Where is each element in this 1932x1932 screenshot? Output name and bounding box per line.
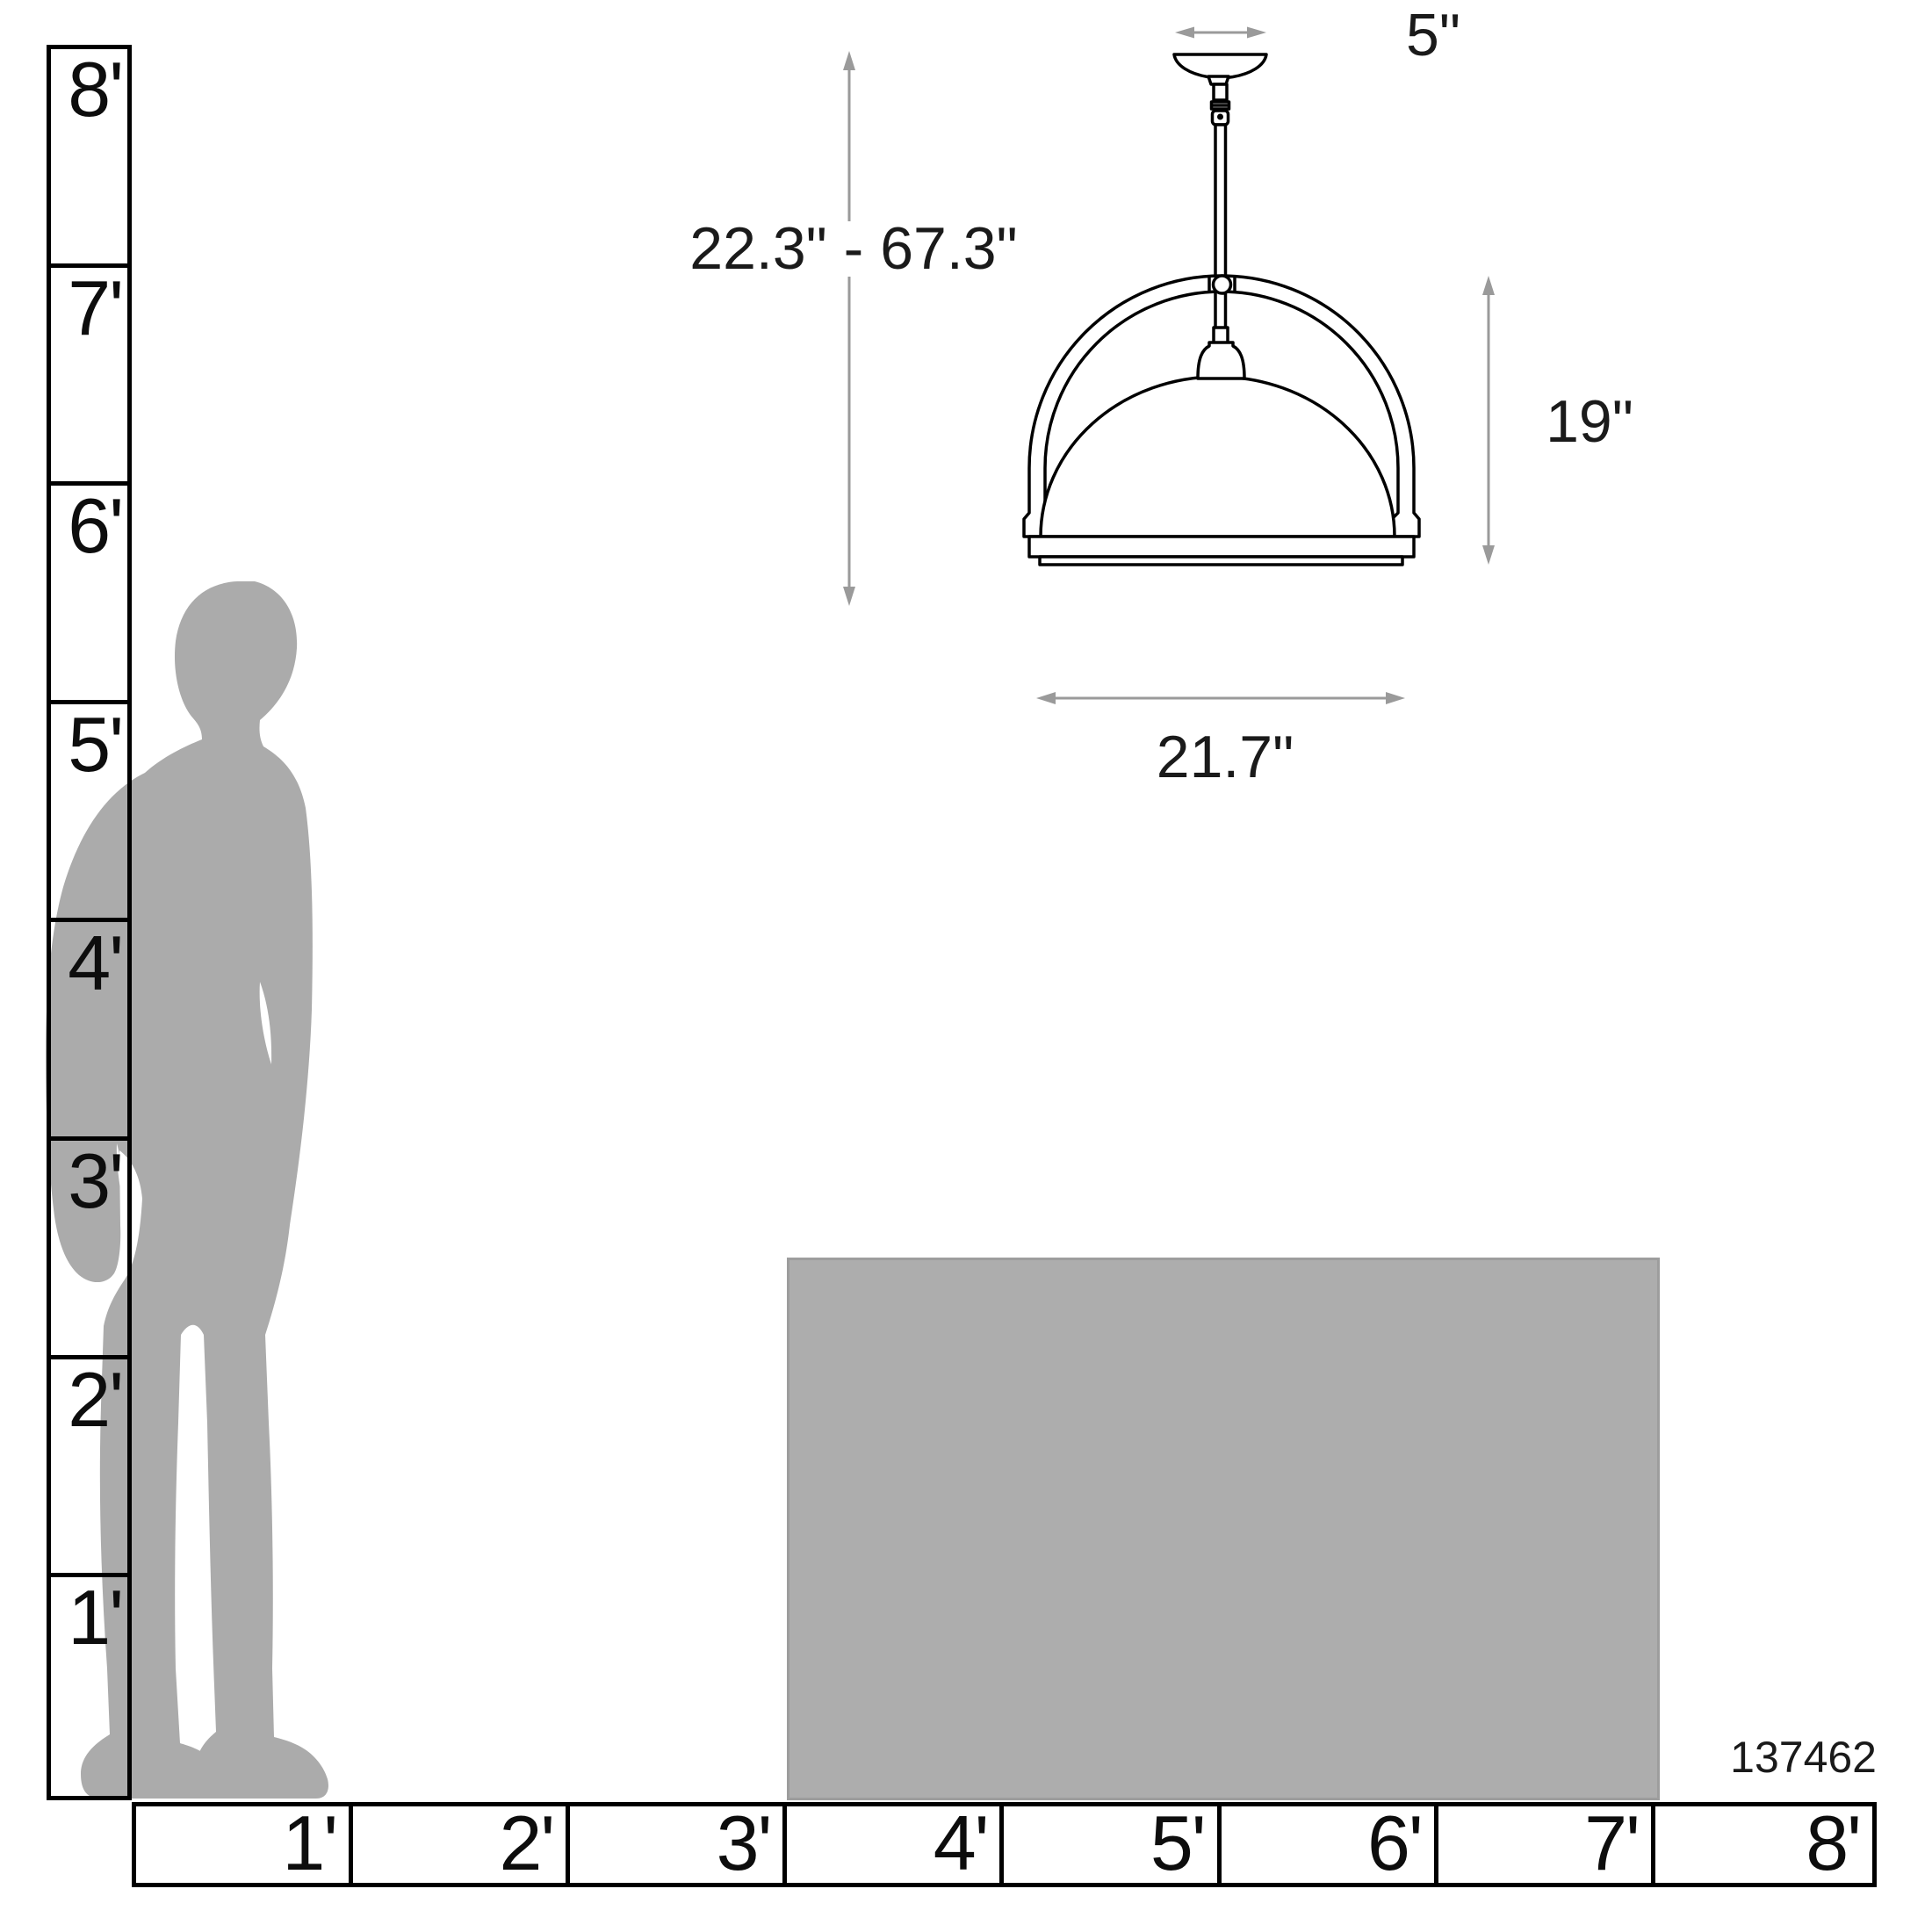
pendant-stem-connector [1214, 84, 1227, 100]
scale-reference-table [787, 1258, 1660, 1800]
vertical-ruler: 8' 7' 6' 5' 4' 3' 2' 1' [47, 45, 132, 1800]
pendant-bottom-rim [1040, 557, 1402, 565]
vertical-ruler-cell: 7' [51, 268, 127, 487]
pendant-fixture-drawing [1024, 54, 1419, 565]
vertical-ruler-cell: 8' [51, 49, 127, 268]
product-id: 137462 [1730, 1735, 1877, 1779]
horizontal-ruler-cell: 7' [1438, 1806, 1655, 1883]
horizontal-ruler-cell: 2' [353, 1806, 570, 1883]
vertical-ruler-cell: 1' [51, 1577, 127, 1796]
size-diagram: 8' 7' 6' 5' 4' 3' 2' 1' 1' 2' 3' 4' 5' 6… [0, 0, 1932, 1932]
ruler-label: 2' [499, 1806, 553, 1883]
canopy-width-arrow [1175, 27, 1266, 39]
ruler-label: 4' [934, 1806, 988, 1883]
ruler-label: 7' [68, 270, 122, 347]
height-range-label: 22.3" - 67.3" [689, 219, 1017, 278]
fixture-height-arrow [1482, 276, 1495, 565]
ruler-label: 8' [68, 51, 122, 128]
height-range-arrow [843, 51, 855, 606]
ruler-label: 1' [282, 1806, 336, 1883]
horizontal-ruler-cell: 5' [1005, 1806, 1222, 1883]
ruler-label: 1' [68, 1579, 122, 1656]
pendant-bottom-band [1029, 537, 1414, 557]
horizontal-ruler-cell: 3' [570, 1806, 787, 1883]
ruler-label: 8' [1806, 1806, 1860, 1883]
horizontal-ruler-cell: 4' [787, 1806, 1004, 1883]
horizontal-ruler-cell: 8' [1655, 1806, 1872, 1883]
vertical-ruler-cell: 6' [51, 486, 127, 704]
ruler-label: 6' [1367, 1806, 1422, 1883]
ruler-label: 6' [68, 487, 122, 565]
ruler-label: 2' [68, 1361, 122, 1438]
horizontal-ruler-cell: 1' [136, 1806, 353, 1883]
pendant-socket-bell [1198, 342, 1244, 378]
fixture-width-label: 21.7" [1157, 727, 1294, 787]
vertical-ruler-cell: 3' [51, 1141, 127, 1359]
ruler-label: 7' [1584, 1806, 1639, 1883]
vertical-ruler-cell: 4' [51, 923, 127, 1142]
pendant-canopy [1174, 54, 1266, 78]
frame-top-ring [1214, 276, 1231, 293]
dimension-arrows [843, 27, 1495, 705]
ruler-label: 3' [717, 1806, 771, 1883]
fixture-width-arrow [1036, 692, 1405, 704]
horizontal-ruler: 1' 2' 3' 4' 5' 6' 7' 8' [132, 1802, 1877, 1887]
vertical-ruler-cell: 2' [51, 1359, 127, 1578]
vertical-ruler-cell: 5' [51, 704, 127, 923]
pendant-downrod [1215, 125, 1226, 331]
pendant-shade-dome [1041, 377, 1395, 537]
ruler-label: 5' [68, 706, 122, 783]
horizontal-ruler-cell: 6' [1222, 1806, 1438, 1883]
canopy-width-label: 5" [1406, 5, 1460, 65]
ruler-label: 5' [1150, 1806, 1205, 1883]
ruler-label: 4' [68, 925, 122, 1002]
ruler-label: 3' [68, 1143, 122, 1220]
fixture-height-label: 19" [1546, 392, 1633, 451]
